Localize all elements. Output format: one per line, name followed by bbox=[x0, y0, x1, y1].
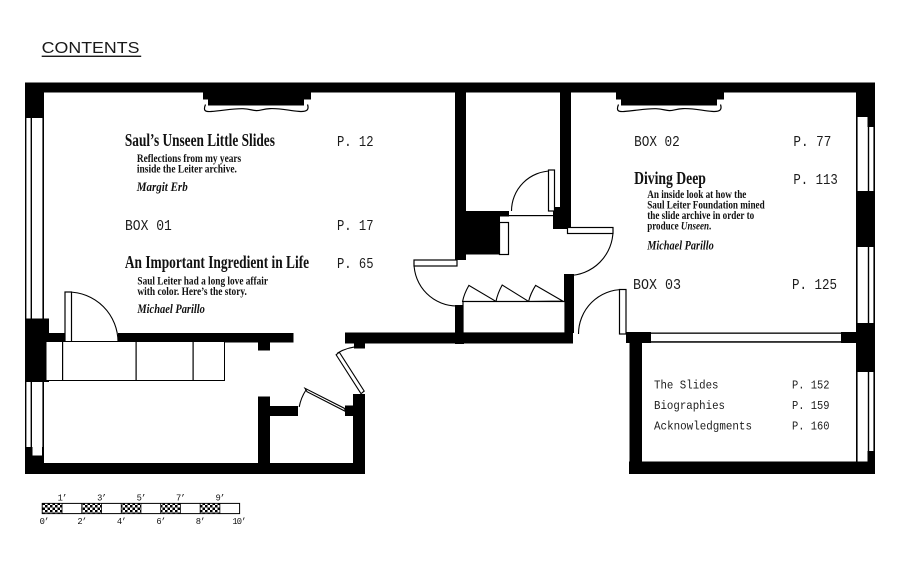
svg-text:Saul’s Unseen Little Slides: Saul’s Unseen Little Slides bbox=[125, 130, 275, 150]
svg-text:P. 160: P. 160 bbox=[792, 420, 830, 434]
svg-text:P. 12: P. 12 bbox=[337, 134, 374, 151]
svg-text:P. 17: P. 17 bbox=[337, 218, 374, 235]
svg-text:8’: 8’ bbox=[196, 517, 205, 527]
svg-text:P. 159: P. 159 bbox=[792, 399, 830, 413]
svg-text:1’: 1’ bbox=[58, 494, 67, 504]
svg-text:Diving Deep: Diving Deep bbox=[634, 168, 706, 188]
svg-text:BOX 01: BOX 01 bbox=[125, 218, 172, 235]
svg-text:0’: 0’ bbox=[40, 517, 49, 527]
svg-text:10’: 10’ bbox=[232, 517, 245, 527]
svg-text:An Important Ingredient in Lif: An Important Ingredient in Life bbox=[125, 252, 309, 272]
svg-text:5’: 5’ bbox=[137, 494, 146, 504]
svg-text:P. 77: P. 77 bbox=[793, 134, 831, 151]
svg-text:BOX 03: BOX 03 bbox=[633, 277, 681, 294]
svg-text:P. 65: P. 65 bbox=[337, 256, 374, 273]
svg-text:Michael Parillo: Michael Parillo bbox=[137, 302, 205, 316]
svg-text:P. 113: P. 113 bbox=[793, 172, 837, 189]
svg-text:4’: 4’ bbox=[117, 517, 126, 527]
svg-text:with color. Here’s the story.: with color. Here’s the story. bbox=[137, 285, 247, 298]
svg-text:P. 152: P. 152 bbox=[792, 379, 830, 393]
svg-text:Michael Parillo: Michael Parillo bbox=[646, 239, 713, 253]
svg-text:produce Unseen.: produce Unseen. bbox=[647, 220, 711, 233]
svg-text:Margit Erb: Margit Erb bbox=[136, 180, 188, 194]
svg-text:7’: 7’ bbox=[176, 494, 185, 504]
svg-text:Acknowledgments: Acknowledgments bbox=[654, 420, 752, 434]
svg-text:inside the Leiter archive.: inside the Leiter archive. bbox=[137, 162, 237, 175]
svg-text:9’: 9’ bbox=[216, 494, 225, 504]
svg-text:The Slides: The Slides bbox=[654, 379, 719, 393]
svg-text:2’: 2’ bbox=[77, 517, 86, 527]
svg-text:6’: 6’ bbox=[156, 517, 165, 527]
svg-text:BOX 02: BOX 02 bbox=[634, 134, 680, 151]
svg-text:P. 125: P. 125 bbox=[792, 277, 837, 294]
svg-text:CONTENTS: CONTENTS bbox=[42, 40, 140, 57]
svg-text:Biographies: Biographies bbox=[654, 399, 725, 413]
svg-text:3’: 3’ bbox=[97, 494, 106, 504]
